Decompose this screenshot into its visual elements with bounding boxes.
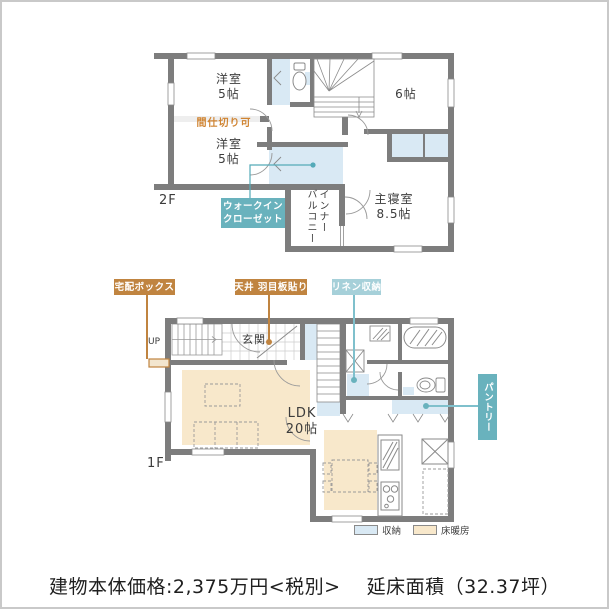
legend-storage-label: 収納 xyxy=(382,523,401,537)
inner-balcony-label: インナー バルコニー xyxy=(304,189,328,247)
bathtub-icon xyxy=(404,327,446,348)
floor-area: 延床面積（32.37坪） xyxy=(367,576,560,598)
floor2-tag: 2F xyxy=(159,193,177,208)
pantry-leader xyxy=(426,405,478,407)
building-price: 建物本体価格:2,375万円<税別> xyxy=(49,576,341,598)
pantry-dot xyxy=(423,403,429,409)
washbasin-icon xyxy=(370,326,390,341)
legend: 収納 床暖房 xyxy=(354,523,478,537)
delivery-box-icon xyxy=(149,359,169,367)
linen-storage-callout: リネン収納 xyxy=(332,279,381,295)
ceiling-panel-dot xyxy=(266,339,272,345)
floor1-tag: 1F xyxy=(147,456,165,471)
staircase-up-icon xyxy=(172,324,222,355)
wic-callout: ウォークイン クローゼット xyxy=(221,198,285,228)
floorplan-page: 洋室 5帖 間仕切り可 洋室 5帖 6帖 主寝室 8.5帖 2F インナー バル… xyxy=(0,0,609,609)
room-label-east: 6帖 xyxy=(382,87,430,102)
refrigerator-icon xyxy=(422,439,448,464)
toilet-2f-icon xyxy=(293,63,306,90)
delivery-box-callout: 宅配ボックス xyxy=(114,279,175,295)
storage-swatch xyxy=(354,525,378,535)
delivery-box-leader xyxy=(146,295,148,359)
linen-storage-dot xyxy=(351,377,357,383)
ceiling-panel-leader xyxy=(268,295,270,341)
wic-leader-dot xyxy=(310,162,315,167)
up-label: UP xyxy=(148,335,160,350)
room-label-west-upper: 洋室 5帖 xyxy=(203,72,255,102)
ceiling-panel-callout: 天井 羽目板貼り xyxy=(235,279,307,295)
toilet-1f-icon xyxy=(417,378,445,392)
linen-storage-leader xyxy=(353,295,355,379)
room-label-master: 主寝室 8.5帖 xyxy=(362,192,426,222)
staircase-inner-icon xyxy=(317,324,340,402)
price-footer: 建物本体価格:2,375万円<税別>延床面積（32.37坪） xyxy=(2,572,607,599)
entrance-label: 玄関 xyxy=(242,332,266,347)
legend-heating-label: 床暖房 xyxy=(441,523,470,537)
folding-door-marks xyxy=(343,414,450,422)
staircase-2f-icon xyxy=(314,59,374,117)
balcony-railing xyxy=(341,226,344,246)
pantry-callout: パントリー xyxy=(478,374,497,440)
partition-note: 間仕切り可 xyxy=(186,114,262,129)
ldk-label: LDK 20帖 xyxy=(274,406,330,438)
kitchen-counter-icon xyxy=(378,435,402,516)
washing-machine-icon xyxy=(346,350,364,372)
room-label-west-lower: 洋室 5帖 xyxy=(203,137,255,167)
floor-heating-swatch xyxy=(413,525,437,535)
cupboard-outline xyxy=(423,469,448,514)
